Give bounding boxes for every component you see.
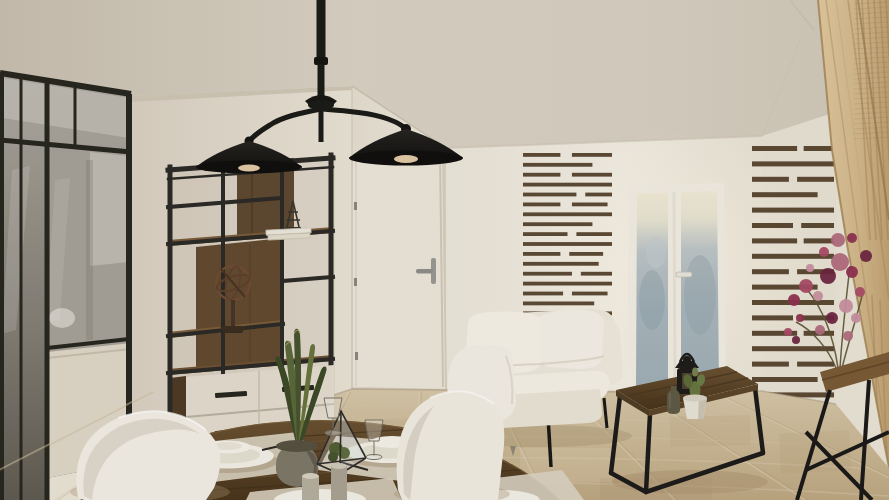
- render-viewport: Interior 3D render — open living and din…: [0, 0, 889, 500]
- interior-render: Interior 3D render — open living and din…: [0, 0, 889, 500]
- vignette-overlay: [0, 0, 889, 500]
